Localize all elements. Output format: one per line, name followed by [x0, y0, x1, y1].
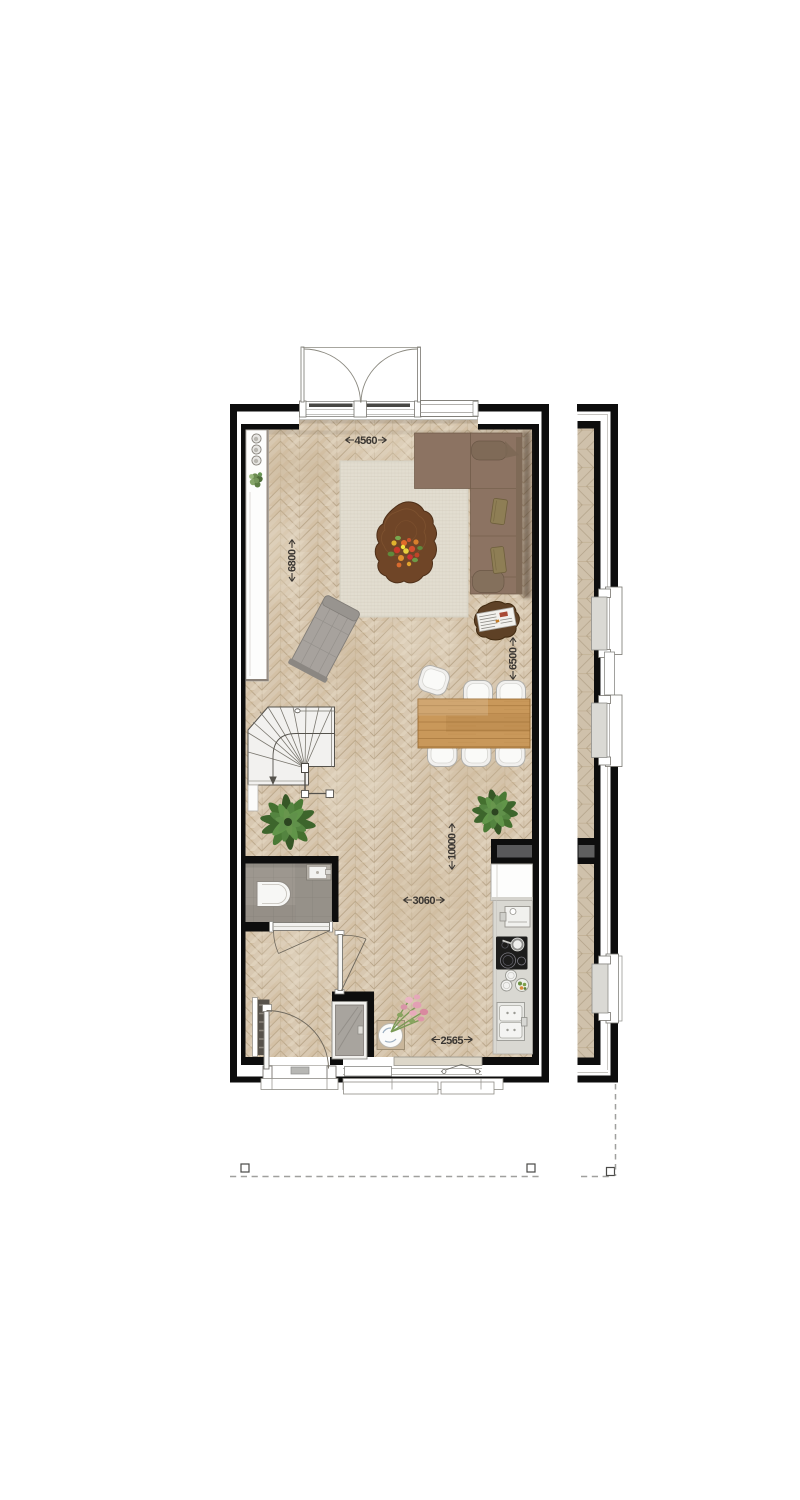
svg-text:3060: 3060 [413, 895, 436, 907]
svg-text:4560: 4560 [355, 435, 378, 447]
svg-text:2565: 2565 [441, 1035, 464, 1047]
svg-text:6500: 6500 [508, 647, 520, 670]
svg-text:6800: 6800 [287, 549, 299, 572]
svg-text:10000: 10000 [447, 833, 459, 860]
